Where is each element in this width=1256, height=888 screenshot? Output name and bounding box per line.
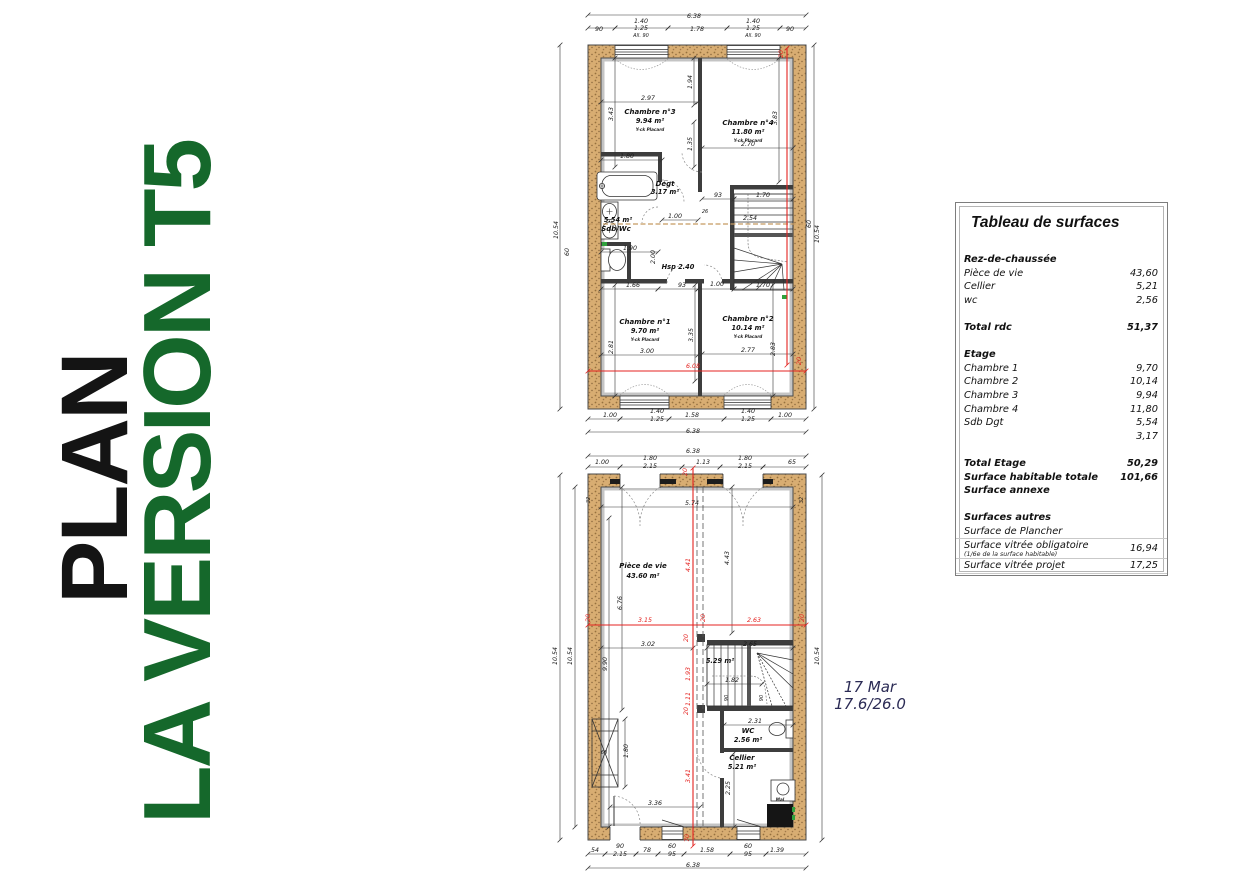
dimension-label: 93 [678,282,686,289]
dimension-label: 10.54 [814,647,821,665]
dimension-label: 95 [744,851,752,858]
dimension-label: 5.21 m² [728,763,756,771]
table-row: Chambre 39,94 [956,389,1167,403]
dimension-label: 93 [714,192,722,199]
dimension-label: 11.80 m² [732,128,765,136]
dimension-label: 2.15 [613,851,627,858]
dimension-label: 6.38 [686,862,700,869]
date-temp-note: 17 Mar 17.6/26.0 [828,679,912,713]
dimension-label: Mal [776,797,785,802]
dimension-label: 1.00 [710,281,724,288]
wc-fixtures [769,720,793,738]
dimension-label: 90 [786,26,794,33]
dimension-label: 4.43 [724,551,731,565]
window-bottom-left [620,396,669,409]
dimension-label: 9.90 [602,657,609,671]
dimension-label: Y-ck Placard [631,337,661,342]
note-date: 17 Mar [828,679,912,696]
dimension-label: 4.41 [685,558,692,572]
table-row: Chambre 19,70 [956,362,1167,376]
surface-table-title: Tableau de surfaces [971,214,1167,232]
dimension-label: 3.15 [638,617,652,624]
dimension-label: 1.40 [650,408,664,415]
table-row: 3,17 [956,430,1167,444]
dimension-label: 2.15 [738,463,752,470]
dimension-label: 2.25 [725,781,732,795]
toilet-tank [786,720,793,738]
dimension-label: 1.25 [650,416,664,423]
dimension-label: 95 [668,851,676,858]
table-row: Surface habitable totale101,66 [956,471,1167,485]
surface-table: Tableau de surfaces Rez-de-chausséePièce… [955,202,1168,576]
dimension-label: 1.00 [668,213,682,220]
dimension-label: 10.54 [553,221,560,239]
dimension-label: 60 [668,843,676,850]
dimension-label: 9.94 m² [636,117,664,125]
table-spacer [956,335,1167,349]
table-row: Total Etage50,29 [956,457,1167,471]
dimension-label: 3.41 [685,769,692,783]
table-spacer [956,443,1167,457]
room-label: Chambre n°4 [722,119,773,127]
staircase [734,194,793,290]
dimension-label: 10.54 [552,647,559,665]
dimension-label: 60 [806,220,813,228]
dimension-label: 20 [700,614,707,622]
dimension-label: 20 [778,50,785,58]
dimension-label: 1.25 [634,25,648,32]
floor-plan-etage: 6.38901.401.25All. 901.781.401.25All. 90… [552,2,837,448]
toilet-bowl [769,723,785,736]
dimension-label: 60 [744,843,752,850]
table-row: Etage [956,348,1167,362]
table-row: Surface vitrée projet17,25 [956,559,1167,574]
dimension-label: All. 90 [744,33,761,39]
dimension-label: 1.25 [741,416,755,423]
bathtub [597,172,657,200]
dimension-label: 1.80 [643,455,657,462]
dimension-label: 5.74 [685,500,699,507]
table-row: Cellier5,21 [956,280,1167,294]
dimension-label: 1.70 [756,192,770,199]
dimension-label: 20 [799,614,806,622]
post [697,705,705,713]
dimension-label: 1.00 [595,459,609,466]
dimension-label: 2.83 [770,342,777,356]
dimension-label: 3.36 [648,800,662,807]
dimension-label: 1.35 [687,137,694,151]
table-row: Rez-de-chaussée [956,253,1167,267]
dimension-label: 90 [724,695,730,701]
table-row: Chambre 411,80 [956,403,1167,417]
dimension-label: 70 [684,834,691,842]
dimension-label: 90 [616,843,624,850]
dimension-label: 6.38 [687,13,701,20]
dimension-label: 5.54 m² [604,216,632,224]
dimension-label: Y-ck Placard [636,127,666,132]
water-heater [767,804,793,827]
dimension-label: 32 [799,497,805,503]
dimension-label: 1.39 [770,847,784,854]
table-row: Sdb Dgt5,54 [956,416,1167,430]
dimension-label: 1.40 [741,408,755,415]
entry-door-opening [610,826,640,841]
dimension-label: 1.80 [738,455,752,462]
dimension-label: 10.54 [567,647,574,665]
dimension-label: 2.54 [743,215,757,222]
dimension-label: All. 90 [632,33,649,39]
dimension-label: 32 [586,497,592,503]
dimension-label: 3.02 [641,641,655,648]
table-row: Pièce de vie43,60 [956,267,1167,281]
bay-door-right [723,473,763,489]
dimension-label: 1.40 [746,18,760,25]
dimension-label: 3.00 [640,348,654,355]
dimension-label: 3.83 [772,111,779,125]
dimension-label: 3.17 m² [651,188,679,196]
dimension-label: 5.29 m² [706,657,734,665]
dimension-label: 2.81 [608,340,615,354]
dimension-label: 1.90 [623,245,637,252]
room-label: Chambre n°2 [722,315,773,323]
dimension-label: 2.15 [643,463,657,470]
room-label: Pièce de vie [619,562,667,570]
dimension-label: 54 [591,847,599,854]
window-top-left [615,46,668,59]
room-label: Cellier [729,754,755,762]
stair-walk-line [748,194,788,262]
dimension-label: 3.35 [688,328,695,342]
dimension-label: 2.00 [650,250,657,264]
dimension-label: 20 [585,614,592,622]
post [697,634,705,642]
dimension-label: 3.43 [608,107,615,121]
dimension-label: Y-ck Placard [734,334,764,339]
dimension-label: 26 [702,209,708,215]
dimension-label: 20 [682,468,689,476]
window-bottom-left [662,820,683,840]
dimension-label: 1.11 [685,692,692,706]
dimension-label: 6.38 [686,428,700,435]
dimension-label: 2.77 [741,347,755,354]
cellier-door-swing [697,753,720,778]
dimension-label: 6.38 [686,448,700,455]
dimension-label: 10.14 m² [732,324,765,332]
room-label: Chambre n°1 [619,318,670,326]
dimension-label: 1.93 [685,667,692,681]
dimension-label: 1.66 [626,282,640,289]
dimension-label: 1.40 [634,18,648,25]
insulation-liner [603,489,791,825]
dimension-label: 1.80 [620,153,634,160]
bay-door-left [620,473,660,489]
dimension-label: 43.60 m² [627,572,660,580]
dimension-label: 60 [601,750,607,756]
room-label: WC [742,727,756,735]
window-bottom-right [737,820,760,840]
room-label: Chambre n°3 [624,108,675,116]
table-spacer [956,307,1167,321]
dimension-label: 1.00 [603,412,617,419]
dimension-label: 20 [683,707,690,715]
floor-plan-sheet: PLAN LA VERSION T5 [0,0,1256,888]
table-row: Surface annexe [956,484,1167,498]
dimension-label: 2.56 m² [734,736,762,744]
table-row: Surfaces autres [956,511,1167,525]
dimension-label: 2.63 [747,617,761,624]
dimension-label: 1.82 [725,677,739,684]
dimension-label: 1.94 [687,75,694,89]
floor-plan-rdc: 6.381.001.802.151.131.802.15652010.5410.… [552,448,837,888]
dimension-label: 1.25 [746,25,760,32]
dimension-label: 90 [595,26,603,33]
dimension-label: 20 [796,357,803,365]
room-label: Dégt [656,180,676,188]
dimension-label: 6.76 [617,596,624,610]
window-bottom-right [724,396,771,409]
dimension-label: 1.78 [690,26,704,33]
dimension-label: 78 [643,847,651,854]
table-spacer [956,498,1167,512]
dimension-label: 1.58 [685,412,699,419]
dimension-label: 1.70 [756,282,770,289]
page-title-version: LA VERSION T5 [140,141,217,824]
dimension-label: 1.00 [778,412,792,419]
dimension-label: Hsp 2.40 [662,263,695,271]
dimension-label: 2.65 [743,641,757,648]
dimension-label: 2.31 [748,718,762,725]
dimension-label: 6.08 [686,363,700,370]
table-row: Chambre 210,14 [956,375,1167,389]
dimension-label: 2.70 [741,141,755,148]
staircase [707,645,793,706]
page-title-plan: PLAN [57,353,133,604]
room-label: Sdb/Wc [601,225,631,233]
dimension-label: 20 [683,634,690,642]
table-row: Surface de Plancher [956,525,1167,540]
dimension-label: 90 [759,695,765,701]
dimension-label: 65 [788,459,796,466]
dimension-label: 1.13 [696,459,710,466]
dimension-label: 2.97 [641,95,655,102]
dimension-label: 1.58 [700,847,714,854]
window-top-right [727,46,780,59]
note-temps: 17.6/26.0 [828,696,912,713]
dimension-label: 10.54 [814,225,821,243]
table-row: Surface vitrée obligatoire(1/6e de la su… [956,539,1167,559]
table-row: Total rdc51,37 [956,321,1167,335]
ridge-dashed-lines [697,487,703,827]
dimension-label: 9.70 m² [631,327,659,335]
dimension-label: 1.80 [623,744,630,758]
table-row: wc2,56 [956,294,1167,308]
dimension-label: 60 [564,248,571,256]
surface-table-rows: Rez-de-chausséePièce de vie43,60Cellier5… [956,253,1167,574]
